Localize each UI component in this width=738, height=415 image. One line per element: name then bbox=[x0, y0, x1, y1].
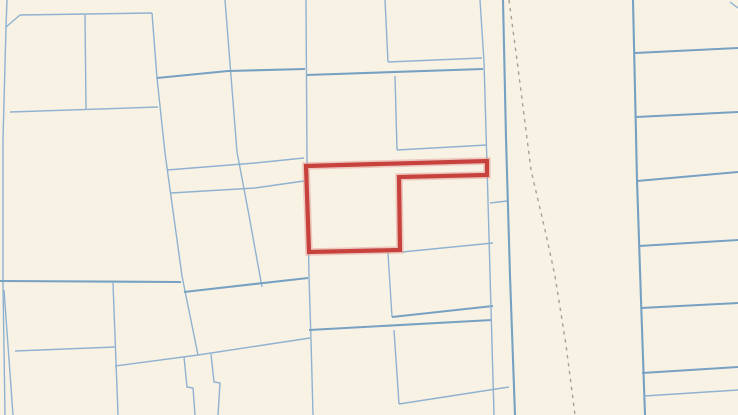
map-background bbox=[0, 0, 738, 415]
parcel-boundary-line bbox=[6, 0, 7, 27]
parcel-boundary-line bbox=[0, 281, 181, 282]
parcel-map-svg[interactable] bbox=[0, 0, 738, 415]
map-viewport[interactable] bbox=[0, 0, 738, 415]
parcel-boundary-line bbox=[85, 15, 86, 110]
